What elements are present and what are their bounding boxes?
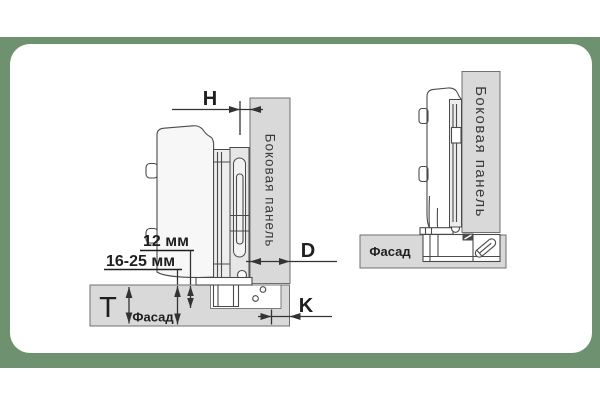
screw-hole [260, 287, 266, 293]
cup-cutout [211, 285, 282, 309]
facade-label: Фасад [369, 244, 411, 259]
dim-label-12mm: 12 мм [143, 233, 189, 250]
dim-label-d: D [301, 240, 315, 262]
facade-label: Фасад [132, 310, 174, 325]
screw-hole [253, 296, 259, 302]
mounting-plate [450, 100, 462, 228]
hinge-installation-screenshot: Боковая панель H 12 мм [0, 0, 600, 400]
dim-label-t: T [99, 292, 117, 324]
dim-label-k: K [299, 295, 314, 317]
plate-latch [452, 128, 462, 144]
side-panel-label: Боковая панель [472, 86, 489, 218]
mounting-plate-slot [234, 158, 246, 257]
screw-bump [146, 164, 158, 179]
hinge-installation-diagram: Боковая панель H 12 мм [0, 0, 600, 400]
dim-label-h: H [203, 88, 217, 110]
dim-label-16-25mm: 16-25 мм [106, 253, 175, 270]
cup-flange [196, 278, 252, 286]
side-panel-label: Боковая панель [263, 134, 278, 248]
